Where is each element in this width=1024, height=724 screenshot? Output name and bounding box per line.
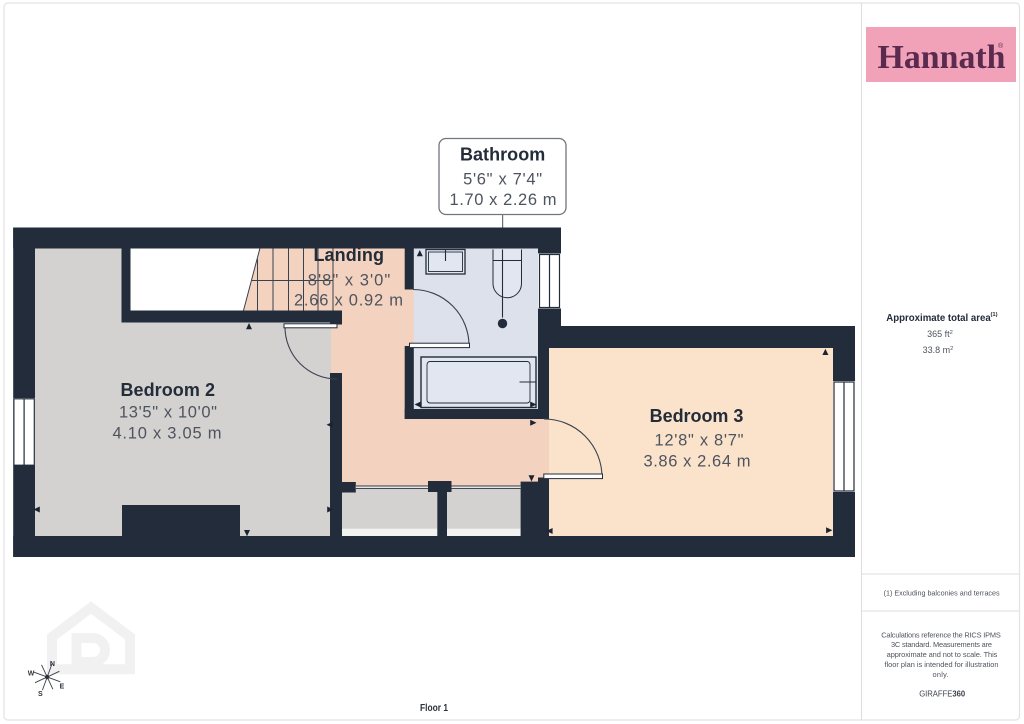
svg-text:approximate and not to scale.: approximate and not to scale. This xyxy=(887,650,998,659)
svg-text:8'8" x 3'0": 8'8" x 3'0" xyxy=(308,272,391,290)
svg-text:4.10 x 3.05 m: 4.10 x 3.05 m xyxy=(113,425,222,443)
svg-text:Bedroom 3: Bedroom 3 xyxy=(650,406,744,426)
svg-text:GIRAFFE360: GIRAFFE360 xyxy=(919,690,966,699)
svg-text:Bedroom 2: Bedroom 2 xyxy=(121,380,216,400)
svg-text:1.70 x 2.26 m: 1.70 x 2.26 m xyxy=(450,191,557,209)
svg-text:®: ® xyxy=(998,42,1004,50)
svg-text:S: S xyxy=(38,691,43,698)
svg-text:2.66 x 0.92 m: 2.66 x 0.92 m xyxy=(294,291,403,309)
svg-text:33.8 m2: 33.8 m2 xyxy=(923,345,954,355)
svg-text:E: E xyxy=(60,684,65,691)
svg-text:Approximate total area: Approximate total area xyxy=(886,313,991,324)
svg-text:Hannath: Hannath xyxy=(878,39,1006,76)
svg-text:W: W xyxy=(28,671,35,678)
svg-text:365 ft2: 365 ft2 xyxy=(927,329,953,339)
svg-text:3.86 x 2.64 m: 3.86 x 2.64 m xyxy=(644,453,751,471)
svg-text:floor plan is intended for ill: floor plan is intended for illustration xyxy=(885,660,999,669)
svg-text:(1): (1) xyxy=(990,312,997,318)
svg-text:Bathroom: Bathroom xyxy=(460,145,545,165)
svg-text:12'8" x 8'7": 12'8" x 8'7" xyxy=(655,432,744,450)
svg-text:13'5" x 10'0": 13'5" x 10'0" xyxy=(119,404,217,422)
svg-text:3C standard. Measurements are: 3C standard. Measurements are xyxy=(891,640,992,649)
svg-text:Floor 1: Floor 1 xyxy=(420,702,448,714)
svg-text:Landing: Landing xyxy=(313,245,384,265)
svg-text:5'6" x 7'4": 5'6" x 7'4" xyxy=(463,171,542,189)
svg-text:(1) Excluding balconies and te: (1) Excluding balconies and terraces xyxy=(884,589,1000,598)
svg-text:only.: only. xyxy=(933,670,949,679)
svg-text:Calculations reference the RIC: Calculations reference the RICS IPMS xyxy=(881,630,1001,639)
svg-text:N: N xyxy=(50,661,55,668)
